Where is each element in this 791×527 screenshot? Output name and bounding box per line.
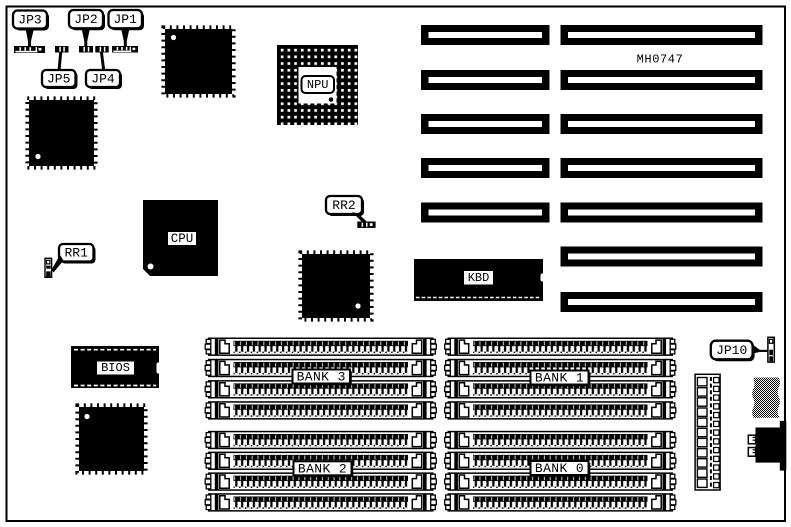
svg-text:BANK 0: BANK 0 [535,461,584,476]
svg-text:BANK 3: BANK 3 [297,370,346,385]
svg-text:JP5: JP5 [47,72,70,87]
svg-text:JP4: JP4 [91,72,115,87]
svg-text:JP1: JP1 [113,12,137,27]
svg-text:BANK 2: BANK 2 [298,461,347,476]
svg-text:RR1: RR1 [64,246,88,261]
svg-text:CPU: CPU [171,232,194,246]
svg-text:JP2: JP2 [74,12,97,27]
svg-text:MH0747: MH0747 [637,53,684,67]
svg-text:JP10: JP10 [716,343,747,358]
svg-text:RR2: RR2 [332,198,355,213]
svg-text:BANK 1: BANK 1 [535,371,584,386]
svg-text:NPU: NPU [307,78,329,92]
svg-text:KBD: KBD [468,271,490,285]
svg-text:JP3: JP3 [18,13,41,28]
svg-text:BIOS: BIOS [101,361,130,375]
